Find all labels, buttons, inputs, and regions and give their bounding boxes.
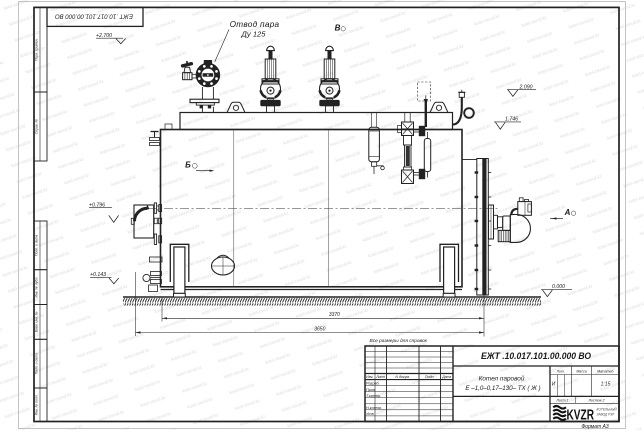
svg-text:N докум.: N докум. xyxy=(395,375,410,379)
svg-text:ЕЖТ .10.017.101.00.000 ВО: ЕЖТ .10.017.101.00.000 ВО xyxy=(481,351,591,361)
svg-text:Масса: Масса xyxy=(576,369,586,373)
svg-text:Инв. № дубл.: Инв. № дубл. xyxy=(35,277,39,298)
svg-text:Масштаб: Масштаб xyxy=(597,369,614,373)
svg-text:Лист 1: Лист 1 xyxy=(555,399,568,403)
svg-text:ЕЖТ .10.017.101.00.000 ВО: ЕЖТ .10.017.101.00.000 ВО xyxy=(55,12,133,19)
svg-text:Е –1,0–0,17–130– ТХ ( Ж ): Е –1,0–0,17–130– ТХ ( Ж ) xyxy=(465,385,540,392)
svg-text:+0.143: +0.143 xyxy=(90,272,106,278)
svg-text:Ду 125: Ду 125 xyxy=(240,30,266,39)
svg-text:Пров.: Пров. xyxy=(366,388,376,392)
svg-text:ЗАВОД РЗР: ЗАВОД РЗР xyxy=(597,413,616,417)
svg-text:Листов 2: Листов 2 xyxy=(587,399,604,403)
svg-text:И: И xyxy=(552,382,556,388)
svg-text:КОТЕЛЬНЫЙ: КОТЕЛЬНЫЙ xyxy=(597,408,618,412)
svg-text:Взам. инв. №: Взам. инв. № xyxy=(35,311,39,332)
svg-text:Утв.: Утв. xyxy=(366,412,375,416)
svg-text:Справ. №: Справ. № xyxy=(35,118,39,134)
svg-text:В: В xyxy=(335,24,341,33)
svg-text:Б: Б xyxy=(185,161,191,170)
svg-text:Лит.: Лит. xyxy=(556,369,565,373)
svg-text:KVZR: KVZR xyxy=(567,407,595,424)
svg-text:Подп. и дата: Подп. и дата xyxy=(35,353,39,374)
svg-text:Котел паровой: Котел паровой xyxy=(479,374,525,382)
svg-text:3370: 3370 xyxy=(329,312,340,318)
svg-text:Н.контр.: Н.контр. xyxy=(366,406,382,410)
svg-text:Все размеры для справок: Все размеры для справок xyxy=(370,338,428,344)
svg-text:Изм.: Изм. xyxy=(366,375,373,379)
svg-text:Разраб.: Разраб. xyxy=(366,382,380,386)
svg-text:Дата: Дата xyxy=(441,375,451,379)
svg-text:Формат А3: Формат А3 xyxy=(581,424,609,430)
svg-text:Подп.: Подп. xyxy=(425,375,435,379)
svg-text:Отвод пара: Отвод пара xyxy=(230,20,280,29)
svg-text:Лист: Лист xyxy=(375,375,385,379)
svg-text:А: А xyxy=(564,208,571,217)
svg-text:Подп. и дата: Подп. и дата xyxy=(35,235,39,256)
svg-text:Перв. примен.: Перв. примен. xyxy=(35,38,39,61)
svg-text:Инв. № подл.: Инв. № подл. xyxy=(35,394,39,415)
svg-text:Т.контр.: Т.контр. xyxy=(366,394,381,398)
svg-text:1:15: 1:15 xyxy=(601,382,611,388)
svg-text:3650: 3650 xyxy=(314,326,325,332)
